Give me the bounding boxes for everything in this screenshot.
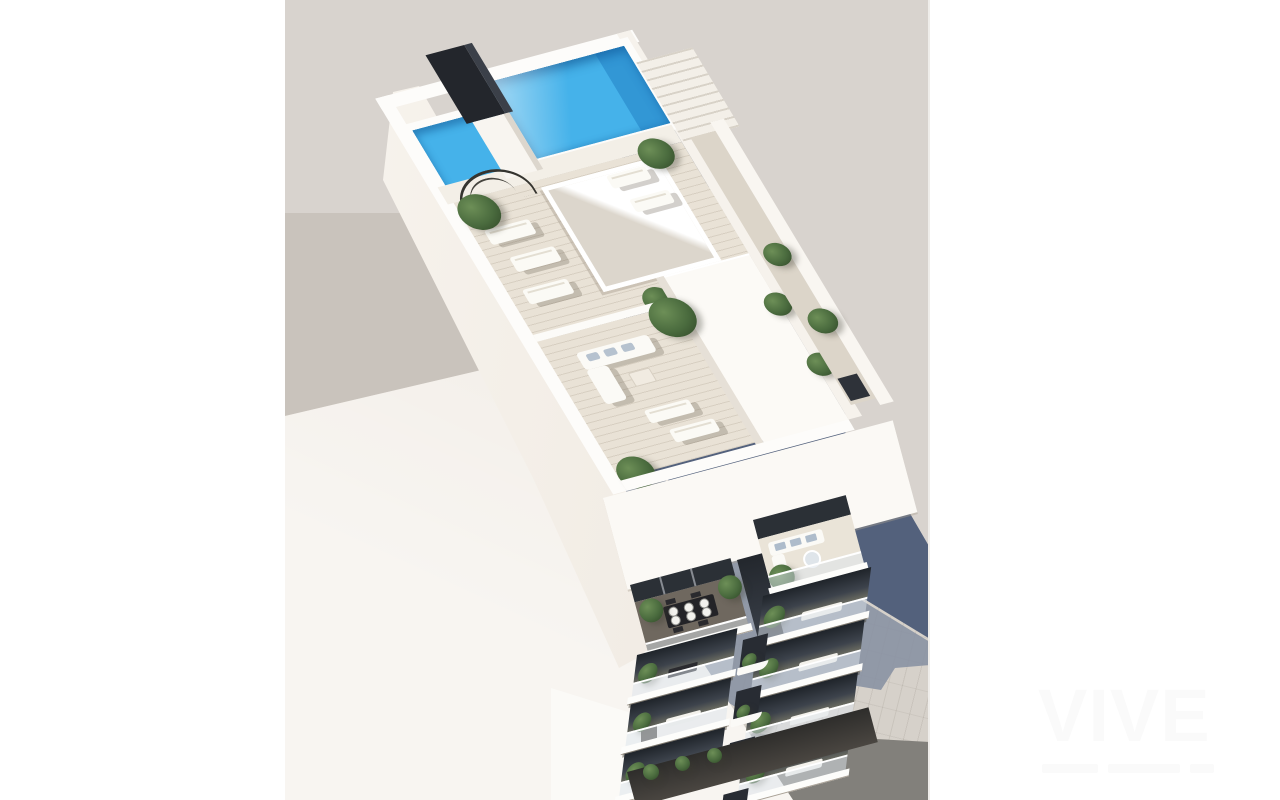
- street-tree: [675, 756, 690, 771]
- watermark: VIVE: [1038, 676, 1238, 786]
- watermark-tagline-bar: [1108, 764, 1180, 773]
- watermark-tagline-bar: [1190, 764, 1214, 773]
- watermark-logo: VIVE: [1038, 676, 1238, 756]
- scene-edge-line: [928, 0, 930, 800]
- render-scene: [285, 0, 930, 800]
- street-tree: [643, 764, 659, 780]
- watermark-tagline: [1042, 764, 1214, 773]
- street-tree: [707, 748, 722, 763]
- watermark-tagline-bar: [1042, 764, 1098, 773]
- render-page: VIVE: [0, 0, 1280, 800]
